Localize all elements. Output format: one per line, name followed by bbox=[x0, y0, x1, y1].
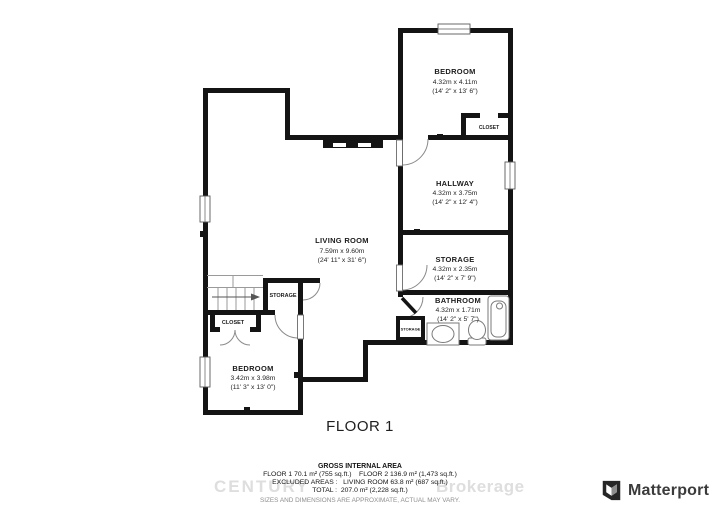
window-bedroom-bottom bbox=[200, 357, 210, 387]
bathtub bbox=[488, 296, 509, 340]
svg-text:BATHROOM: BATHROOM bbox=[435, 296, 481, 305]
svg-text:4.32m x 3.75m: 4.32m x 3.75m bbox=[433, 190, 478, 197]
svg-text:3.42m x 3.98m: 3.42m x 3.98m bbox=[231, 375, 276, 382]
svg-text:BEDROOM: BEDROOM bbox=[434, 67, 475, 76]
label-bedroom-top: BEDROOM 4.32m x 4.11m (14' 2" x 13' 6") bbox=[432, 67, 478, 95]
svg-text:(14' 2" x 13' 6"): (14' 2" x 13' 6") bbox=[432, 88, 478, 95]
floor-areas-line: FLOOR 1 70.1 m² (755 sq.ft.) FLOOR 2 136… bbox=[0, 471, 720, 479]
door-storage-room bbox=[397, 265, 428, 291]
label-storage-tiny: STORAGE bbox=[401, 327, 421, 332]
svg-text:LIVING ROOM: LIVING ROOM bbox=[315, 236, 369, 245]
svg-text:7.59m x 9.60m: 7.59m x 9.60m bbox=[320, 248, 365, 255]
label-hallway: HALLWAY 4.32m x 3.75m (14' 2" x 12' 4") bbox=[432, 179, 478, 206]
fireplace bbox=[323, 140, 383, 148]
door-corridor bbox=[303, 283, 320, 300]
matterport-wordmark: Matterport bbox=[628, 482, 709, 500]
svg-text:(14' 2" x 7' 9"): (14' 2" x 7' 9") bbox=[434, 275, 476, 282]
svg-text:BEDROOM: BEDROOM bbox=[232, 364, 273, 373]
stairs bbox=[207, 276, 263, 311]
svg-text:(14' 2" x 12' 4"): (14' 2" x 12' 4") bbox=[432, 199, 478, 206]
svg-text:(14' 2" x 5' 7"): (14' 2" x 5' 7") bbox=[437, 316, 479, 323]
matterport-icon bbox=[601, 480, 622, 501]
walls bbox=[200, 28, 513, 415]
window-hallway bbox=[505, 162, 515, 189]
toilet bbox=[468, 321, 486, 346]
matterport-logo: Matterport bbox=[601, 480, 709, 501]
label-storage: STORAGE 4.32m x 2.35m (14' 2" x 7' 9") bbox=[433, 255, 478, 282]
svg-text:STORAGE: STORAGE bbox=[435, 255, 474, 264]
window-bedroom-top bbox=[438, 24, 470, 34]
door-bedroom-top bbox=[397, 139, 429, 166]
label-living-room: LIVING ROOM 7.59m x 9.60m (24' 11" x 31'… bbox=[315, 236, 369, 264]
svg-text:4.32m x 1.71m: 4.32m x 1.71m bbox=[436, 307, 481, 314]
label-closet-bottom: CLOSET bbox=[222, 320, 245, 326]
label-closet-top: CLOSET bbox=[479, 125, 499, 131]
svg-text:4.32m x 2.35m: 4.32m x 2.35m bbox=[433, 266, 478, 273]
floor-title: FLOOR 1 bbox=[0, 418, 720, 435]
sink bbox=[427, 323, 459, 345]
gross-internal-area-title: GROSS INTERNAL AREA bbox=[0, 462, 720, 471]
label-bathroom: BATHROOM 4.32m x 1.71m (14' 2" x 5' 7") bbox=[435, 296, 481, 323]
svg-text:HALLWAY: HALLWAY bbox=[436, 179, 474, 188]
svg-text:4.32m x 4.11m: 4.32m x 4.11m bbox=[433, 79, 478, 86]
door-bathroom bbox=[402, 297, 423, 318]
window-living-room bbox=[200, 196, 210, 222]
svg-text:(11' 3" x 13' 0"): (11' 3" x 13' 0") bbox=[230, 384, 275, 391]
door-closet-double bbox=[220, 330, 250, 345]
label-storage-small: STORAGE bbox=[269, 293, 296, 299]
label-bedroom-bottom: BEDROOM 3.42m x 3.98m (11' 3" x 13' 0") bbox=[230, 364, 275, 391]
svg-text:(24' 11" x 31' 6"): (24' 11" x 31' 6") bbox=[318, 257, 367, 264]
door-bedroom-bottom bbox=[275, 315, 304, 339]
